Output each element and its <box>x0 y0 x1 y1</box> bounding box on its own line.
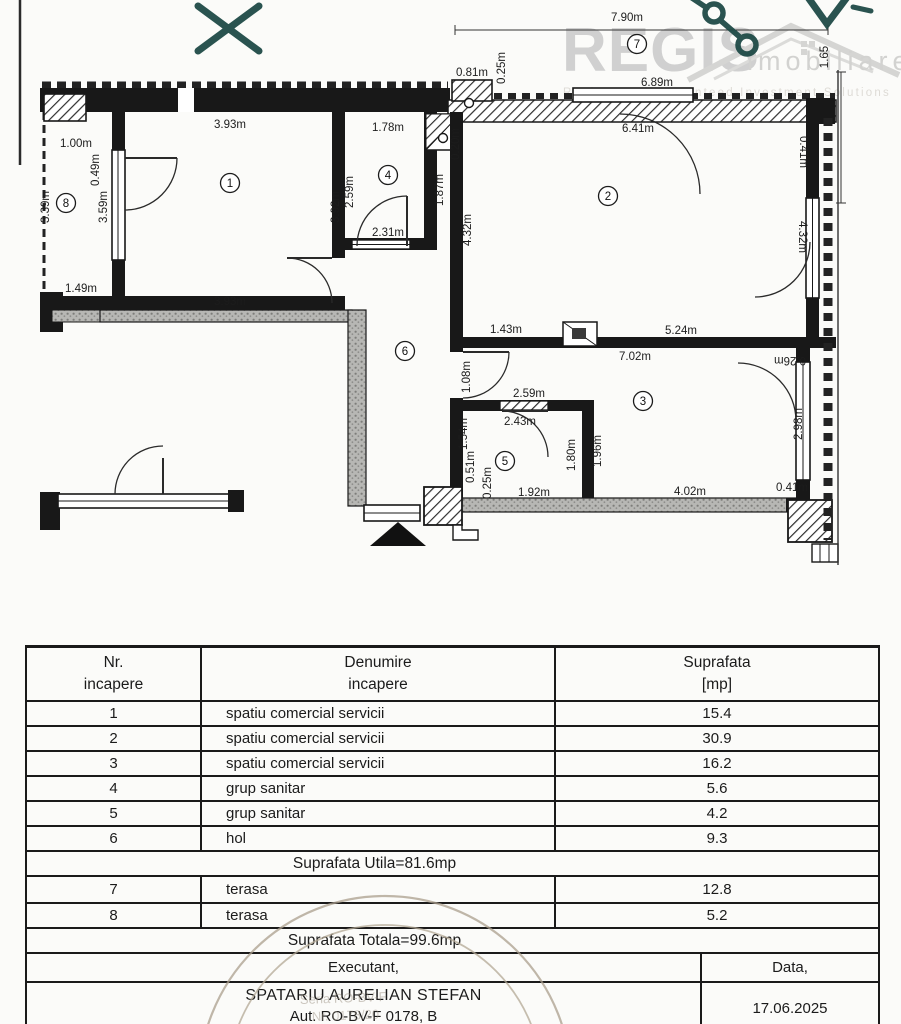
floor-plan-drawing: REGIS imobiliare Real Estate Guaranteed … <box>0 0 901 645</box>
dimension-label: 0.41m <box>797 136 809 168</box>
room-name: hol <box>202 827 556 850</box>
dimension-label: 6.41m <box>622 123 654 135</box>
dimension-label: 3.93m <box>214 296 246 308</box>
dimension-label: 1.54m <box>458 418 470 450</box>
dimension-label: 1.96m <box>592 435 604 467</box>
room-nr: 2 <box>27 727 202 750</box>
header-text: Suprafata <box>683 652 750 674</box>
room-label: 6 <box>402 346 408 358</box>
window <box>500 401 548 410</box>
dimension-label: 0.20m <box>450 128 462 160</box>
room-name: spatiu comercial servicii <box>202 702 556 725</box>
dimension-label: 5.24m <box>665 325 697 337</box>
heart-icon[interactable] <box>807 0 848 24</box>
dimension-label: 1.87m <box>434 174 446 206</box>
signature-row: SPATARIU AURELIAN STEFAN Aut. RO-BV-F 01… <box>27 983 878 1024</box>
room-area: 16.2 <box>556 752 878 775</box>
dimension-label: 6.89m <box>641 77 673 89</box>
room-area: 30.9 <box>556 727 878 750</box>
dimension-label: 3.93m <box>214 119 246 131</box>
table-row: 1 spatiu comercial servicii 15.4 <box>27 702 878 727</box>
dimension-label: 0.25m <box>482 467 494 499</box>
date-label: Data, <box>702 954 878 981</box>
authorization-number: Aut. RO-BV-F 0178, B <box>290 1008 438 1024</box>
dimension-label: 1.08m <box>461 361 473 393</box>
dimension-label: 7.02m <box>619 351 651 363</box>
header-text: incapere <box>84 674 143 696</box>
header-text: Nr. <box>104 652 124 674</box>
executant-block: SPATARIU AURELIAN STEFAN Aut. RO-BV-F 01… <box>27 983 702 1024</box>
room-label: 5 <box>502 456 508 468</box>
room-number-7: 7 <box>628 35 647 54</box>
header-denumire: Denumire incapere <box>202 648 556 700</box>
window <box>573 88 693 102</box>
room-area: 5.2 <box>556 904 878 927</box>
room-nr: 7 <box>27 877 202 902</box>
room-area: 5.6 <box>556 777 878 800</box>
room-label: 8 <box>63 198 69 210</box>
table-row: 8 terasa 5.2 <box>27 904 878 929</box>
close-icon[interactable] <box>198 6 259 51</box>
room-nr: 4 <box>27 777 202 800</box>
room-name: terasa <box>202 877 556 902</box>
table-row: 4 grup sanitar 5.6 <box>27 777 878 802</box>
dimension-label: 4.32m <box>796 221 808 253</box>
walls <box>40 70 838 565</box>
dimension-label: 1.80m <box>566 439 578 471</box>
header-text: [mp] <box>702 674 732 696</box>
scanned-floor-plan-page: REGIS imobiliare Real Estate Guaranteed … <box>0 0 901 1024</box>
dimension-label: 1.92m <box>518 487 550 499</box>
room-nr: 5 <box>27 802 202 825</box>
table-row: 3 spatiu comercial servicii 16.2 <box>27 752 878 777</box>
room-nr: 3 <box>27 752 202 775</box>
window <box>58 494 232 508</box>
dimension-label: 2.59m <box>344 176 356 208</box>
table-row: 5 grup sanitar 4.2 <box>27 802 878 827</box>
room-label: 7 <box>634 39 640 51</box>
dimension-label: 0.49m <box>90 154 102 186</box>
room-name: grup sanitar <box>202 802 556 825</box>
room-number-6: 6 <box>396 342 415 361</box>
room-label: 1 <box>227 178 233 190</box>
room-area: 15.4 <box>556 702 878 725</box>
dimension-label: 0.41m <box>776 482 808 494</box>
room-label: 3 <box>640 396 646 408</box>
room-area: 9.3 <box>556 827 878 850</box>
window <box>112 150 125 260</box>
subtotal-text: Suprafata Utila=81.6mp <box>293 855 456 873</box>
dimension-label: 1.49m <box>65 283 97 295</box>
header-text: Denumire <box>344 652 411 674</box>
subtotal-row: Suprafata Utila=81.6mp <box>27 852 878 877</box>
room-label: 2 <box>605 191 611 203</box>
room-area: 4.2 <box>556 802 878 825</box>
table-row: 2 spatiu comercial servicii 30.9 <box>27 727 878 752</box>
dimension-label: 2.98m <box>793 408 805 440</box>
table-header-row: Nr. incapere Denumire incapere Suprafata… <box>27 648 878 702</box>
room-area: 12.8 <box>556 877 878 902</box>
room-number-4: 4 <box>379 166 398 185</box>
window <box>364 505 420 521</box>
dimension-label: 0.51m <box>465 451 477 483</box>
dimension-label: 2.59m <box>513 388 545 400</box>
dimension-label: 3.59m <box>98 191 110 223</box>
room-name: terasa <box>202 904 556 927</box>
column <box>788 500 832 542</box>
dimension-label: 0.26m <box>774 354 806 366</box>
dimension-label: 3.39m <box>40 191 52 223</box>
column <box>424 487 462 525</box>
total-row: Suprafata Totala=99.6mp <box>27 929 878 954</box>
area-table: Nr. incapere Denumire incapere Suprafata… <box>25 645 880 1024</box>
room-nr: 1 <box>27 702 202 725</box>
room-number-3: 3 <box>634 392 653 411</box>
table-row: 7 terasa 12.8 <box>27 877 878 904</box>
header-nr: Nr. incapere <box>27 648 202 700</box>
dimension-label: 3.92m <box>330 191 342 223</box>
window <box>352 240 410 249</box>
room-name: spatiu comercial servicii <box>202 727 556 750</box>
dimension-label: 1.65 <box>819 46 831 68</box>
dimension-label: 1.43m <box>490 324 522 336</box>
dimension-label: 2.43m <box>504 416 536 428</box>
dimension-label: 4.02m <box>674 486 706 498</box>
dimension-label: 2.31m <box>372 227 404 239</box>
room-label: 4 <box>385 170 392 182</box>
header-suprafata: Suprafata [mp] <box>556 648 878 700</box>
dimension-label: 1.00m <box>60 138 92 150</box>
dimension-label: 1.78m <box>372 122 404 134</box>
dimension-label: 0.81m <box>456 67 488 79</box>
room-number-8: 8 <box>57 194 76 213</box>
table-row: 6 hol 9.3 <box>27 827 878 852</box>
executant-label: Executant, <box>27 954 702 981</box>
dimension-label: 4.32m <box>462 214 474 246</box>
room-nr: 6 <box>27 827 202 850</box>
date-value: 17.06.2025 <box>702 983 878 1024</box>
room-nr: 8 <box>27 904 202 927</box>
header-text: incapere <box>348 674 407 696</box>
entrance-arrow-icon <box>370 522 426 546</box>
dimension-label: 7.90m <box>611 12 643 24</box>
room-name: spatiu comercial servicii <box>202 752 556 775</box>
dash-icon <box>853 7 871 11</box>
room-number-1: 1 <box>221 174 240 193</box>
executant-name: SPATARIU AURELIAN STEFAN <box>245 987 481 1005</box>
total-text: Suprafata Totala=99.6mp <box>288 932 461 950</box>
dimension-label: 0.25m <box>496 52 508 84</box>
room-name: grup sanitar <box>202 777 556 800</box>
signature-header-row: Executant, Data, <box>27 954 878 983</box>
room-number-2: 2 <box>599 187 618 206</box>
room-number-5: 5 <box>496 452 515 471</box>
